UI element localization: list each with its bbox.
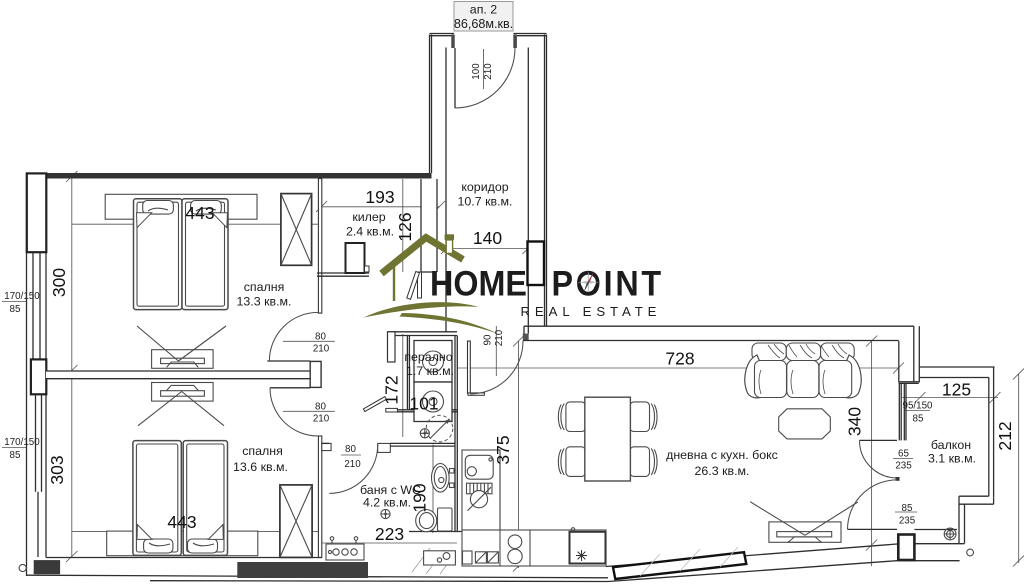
svg-text:100: 100 bbox=[471, 63, 482, 80]
svg-text:223: 223 bbox=[375, 524, 404, 544]
svg-text:375: 375 bbox=[493, 435, 513, 464]
svg-text:190: 190 bbox=[410, 483, 430, 512]
svg-text:26.3 кв.м.: 26.3 кв.м. bbox=[695, 464, 750, 478]
svg-text:300: 300 bbox=[49, 268, 69, 297]
svg-text:85: 85 bbox=[10, 304, 21, 315]
svg-text:10.7 кв.м.: 10.7 кв.м. bbox=[458, 195, 513, 209]
svg-text:193: 193 bbox=[365, 187, 394, 207]
svg-text:13.6 кв.м.: 13.6 кв.м. bbox=[233, 460, 288, 474]
svg-text:1.7 кв.м.: 1.7 кв.м. bbox=[406, 364, 454, 378]
svg-text:140: 140 bbox=[473, 228, 502, 248]
svg-text:212: 212 bbox=[995, 421, 1015, 450]
svg-text:85: 85 bbox=[10, 450, 21, 461]
svg-text:86,68м.кв.: 86,68м.кв. bbox=[454, 17, 513, 31]
svg-text:95/150: 95/150 bbox=[903, 401, 934, 412]
svg-text:210: 210 bbox=[494, 329, 505, 346]
svg-text:85: 85 bbox=[913, 414, 924, 425]
svg-text:ап. 2: ап. 2 bbox=[470, 3, 497, 17]
svg-text:235: 235 bbox=[895, 461, 912, 472]
svg-text:126: 126 bbox=[395, 212, 415, 241]
svg-text:101: 101 bbox=[409, 394, 438, 414]
svg-text:210: 210 bbox=[344, 459, 361, 470]
svg-text:спалня: спалня bbox=[242, 444, 283, 458]
svg-text:4.2 кв.м.: 4.2 кв.м. bbox=[363, 496, 411, 510]
svg-text:85: 85 bbox=[902, 503, 913, 514]
svg-text:POINT: POINT bbox=[552, 264, 664, 304]
svg-text:728: 728 bbox=[665, 349, 694, 369]
svg-text:90: 90 bbox=[483, 334, 494, 345]
svg-text:443: 443 bbox=[185, 203, 214, 223]
svg-text:балкон: балкон bbox=[931, 438, 971, 452]
svg-text:3.1 кв.м.: 3.1 кв.м. bbox=[928, 452, 976, 466]
svg-text:210: 210 bbox=[483, 63, 494, 80]
svg-text:дневна с кухн. бокс: дневна с кухн. бокс bbox=[666, 448, 778, 462]
svg-text:65: 65 bbox=[898, 449, 909, 460]
svg-text:13.3 кв.м.: 13.3 кв.м. bbox=[237, 295, 292, 309]
svg-text:443: 443 bbox=[167, 512, 196, 532]
svg-text:170/150: 170/150 bbox=[4, 291, 40, 302]
svg-text:перално: перално bbox=[404, 350, 452, 364]
svg-text:170/150: 170/150 bbox=[4, 437, 40, 448]
svg-text:HOME: HOME bbox=[430, 264, 527, 304]
svg-text:125: 125 bbox=[942, 380, 971, 400]
svg-text:210: 210 bbox=[313, 414, 330, 425]
svg-text:80: 80 bbox=[315, 332, 326, 343]
svg-text:340: 340 bbox=[845, 407, 865, 436]
svg-text:303: 303 bbox=[47, 455, 67, 484]
svg-text:80: 80 bbox=[315, 402, 326, 413]
svg-text:235: 235 bbox=[899, 516, 916, 527]
svg-text:2.4 кв.м.: 2.4 кв.м. bbox=[346, 225, 394, 239]
svg-text:80: 80 bbox=[345, 444, 356, 455]
svg-text:спалня: спалня bbox=[244, 280, 285, 294]
svg-text:килер: килер bbox=[352, 210, 385, 224]
svg-text:172: 172 bbox=[382, 375, 402, 404]
svg-text:коридор: коридор bbox=[461, 180, 508, 194]
svg-text:210: 210 bbox=[313, 344, 330, 355]
svg-text:REAL ESTATE: REAL ESTATE bbox=[521, 304, 662, 319]
